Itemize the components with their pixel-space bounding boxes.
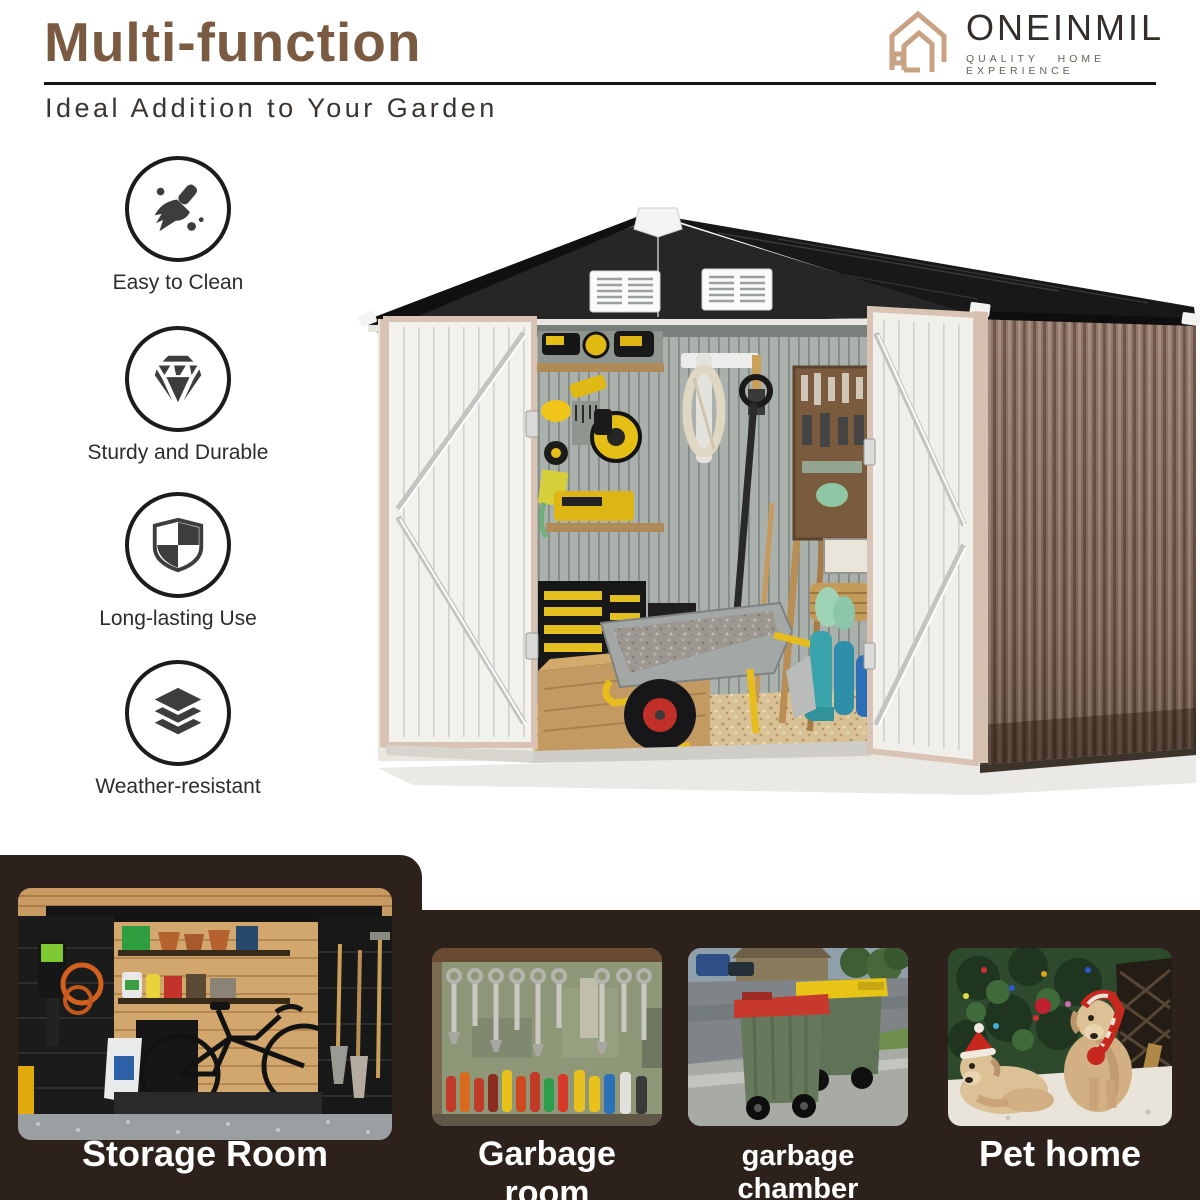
feature-circle	[125, 660, 231, 766]
gable-vent	[590, 271, 660, 312]
diamond-icon	[147, 348, 209, 410]
feature-circle	[125, 156, 231, 262]
shed-left-door	[380, 319, 538, 747]
gable-vent	[702, 269, 772, 310]
shed-photo	[358, 203, 1200, 821]
pet-home-photo	[948, 948, 1172, 1126]
header-divider	[44, 82, 1156, 85]
product-infographic: Multi-function Ideal Addition to Your Ga…	[0, 0, 1200, 1200]
showcase-label-storage-room: Storage Room	[18, 1133, 392, 1175]
showcase-label-garbage-room: Garbage room	[432, 1135, 662, 1200]
feature-label: Sturdy and Durable	[78, 441, 278, 465]
feature-sturdy-durable: Sturdy and Durable	[78, 326, 278, 465]
broom-icon	[147, 178, 209, 240]
shield-icon	[147, 514, 209, 576]
garbage-chamber-photo	[688, 948, 908, 1126]
brand-logo: ONEINMIL QUALITY HOME EXPERIENCE	[880, 4, 1180, 80]
page-title: Multi-function	[44, 10, 422, 74]
shed-right-door	[864, 309, 976, 763]
garbage-room-photo	[432, 948, 662, 1126]
feature-circle	[125, 326, 231, 432]
page-subtitle: Ideal Addition to Your Garden	[45, 93, 498, 124]
showcase-label-pet-home: Pet home	[948, 1133, 1172, 1175]
brand-name: ONEINMIL	[966, 7, 1180, 49]
feature-label: Weather-resistant	[78, 775, 278, 799]
feature-label: Long-lasting Use	[78, 607, 278, 631]
layers-icon	[147, 682, 209, 744]
feature-long-lasting: Long-lasting Use	[78, 492, 278, 631]
feature-circle	[125, 492, 231, 598]
house-outline-icon	[880, 6, 954, 78]
feature-label: Easy to Clean	[78, 271, 278, 295]
feature-easy-to-clean: Easy to Clean	[78, 156, 278, 295]
showcase-label-garbage-chamber: garbage chamber	[688, 1140, 908, 1200]
brand-tagline: QUALITY HOME EXPERIENCE	[966, 53, 1180, 77]
storage-room-photo	[18, 888, 392, 1140]
feature-weather-resistant: Weather-resistant	[78, 660, 278, 799]
